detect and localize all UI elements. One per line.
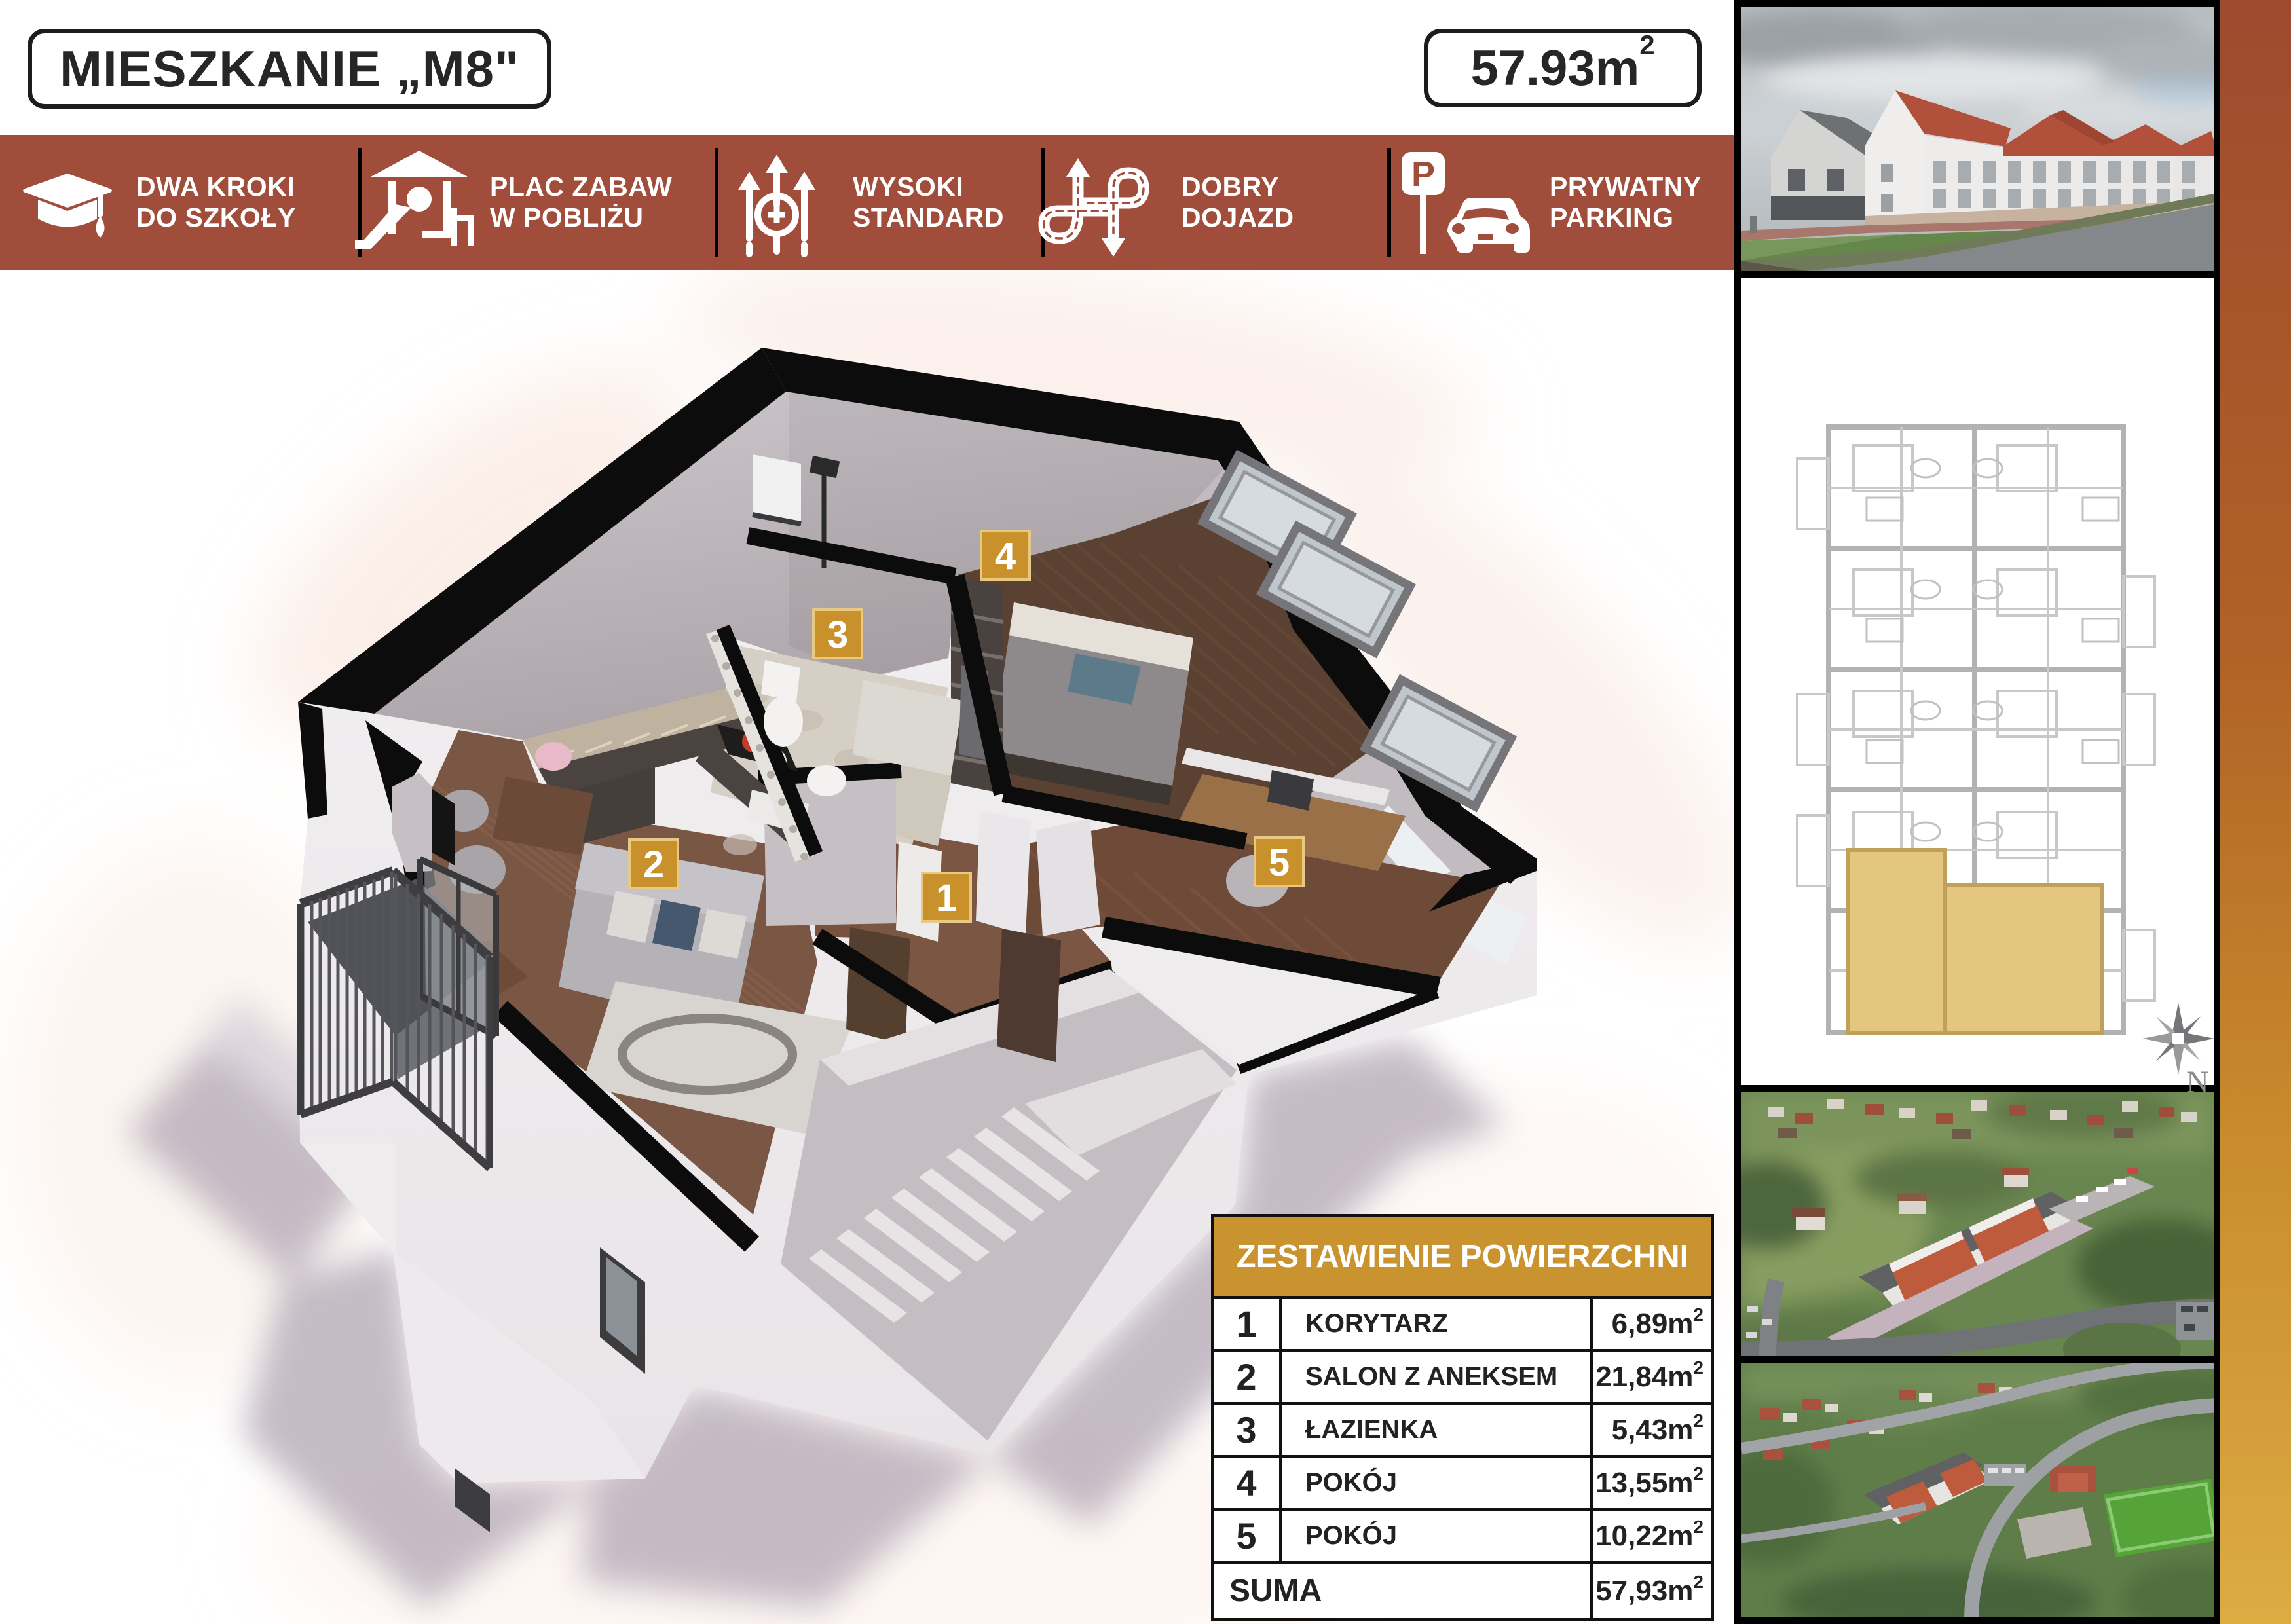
svg-text:5: 5 [1269,841,1290,884]
svg-text:3: 3 [827,614,848,656]
svg-text:2: 2 [643,843,664,886]
svg-text:1: 1 [936,877,957,919]
svg-text:P: P [1411,155,1435,194]
svg-text:4: 4 [995,535,1016,578]
